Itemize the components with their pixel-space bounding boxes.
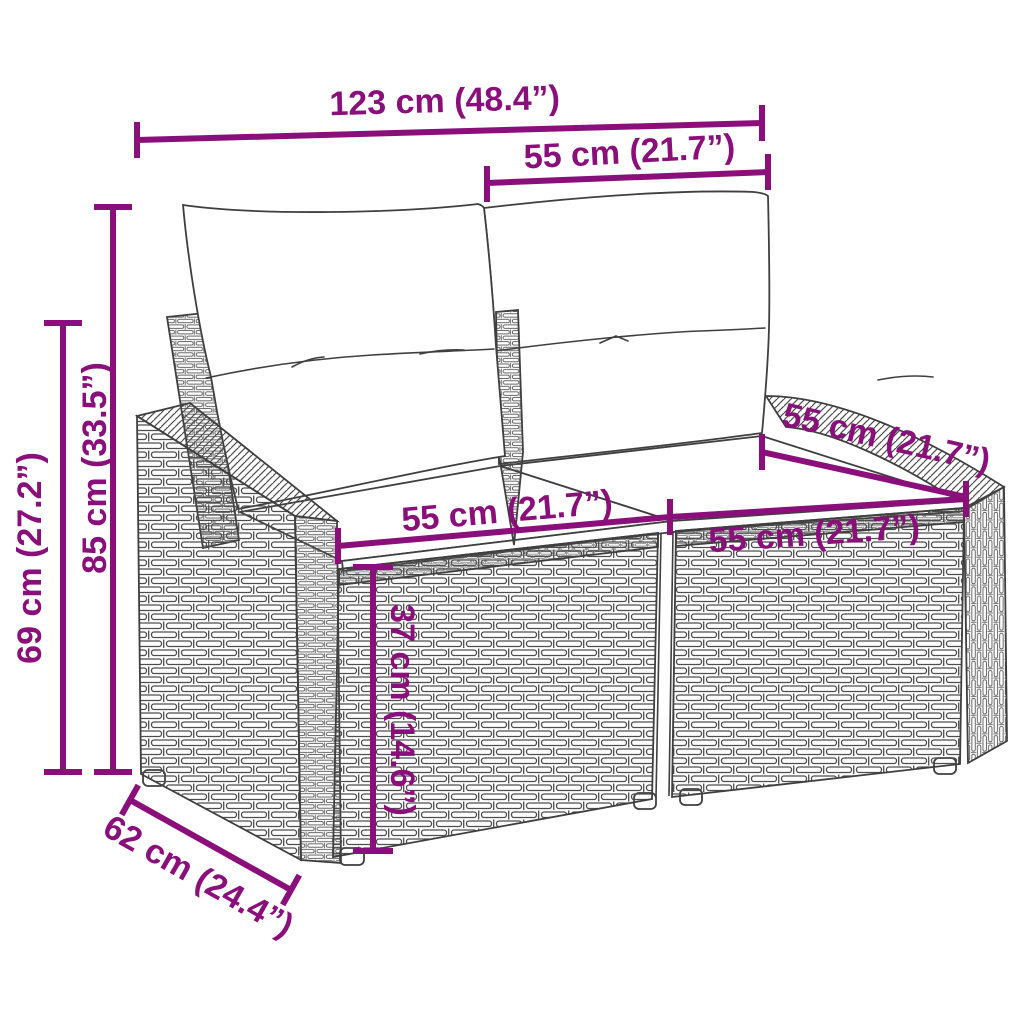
dimension-label-overall-height: 85 cm (33.5”)	[76, 362, 114, 574]
dimension-label-armrest-height: 69 cm (27.2”)	[11, 452, 49, 664]
dimension-armrest-height: 69 cm (27.2”)	[11, 323, 82, 772]
diagram-canvas: 123 cm (48.4”) 55 cm (21.7”) 85 cm (33.5…	[0, 0, 1024, 1024]
back-cushion-right	[484, 191, 769, 464]
dimension-label-overall-width: 123 cm (48.4”)	[329, 79, 561, 123]
dimension-overall-height: 85 cm (33.5”)	[76, 207, 132, 772]
back-cushion-right-fold2	[878, 376, 933, 380]
product-dimension-diagram: 123 cm (48.4”) 55 cm (21.7”) 85 cm (33.5…	[0, 0, 1024, 1024]
dimension-label-backrest-section-width: 55 cm (21.7”)	[523, 128, 736, 177]
dimension-label-seat-height: 37 cm (14.6”)	[383, 604, 421, 816]
armrest-right-front-face	[964, 487, 1007, 763]
base-panel-left	[333, 533, 658, 857]
